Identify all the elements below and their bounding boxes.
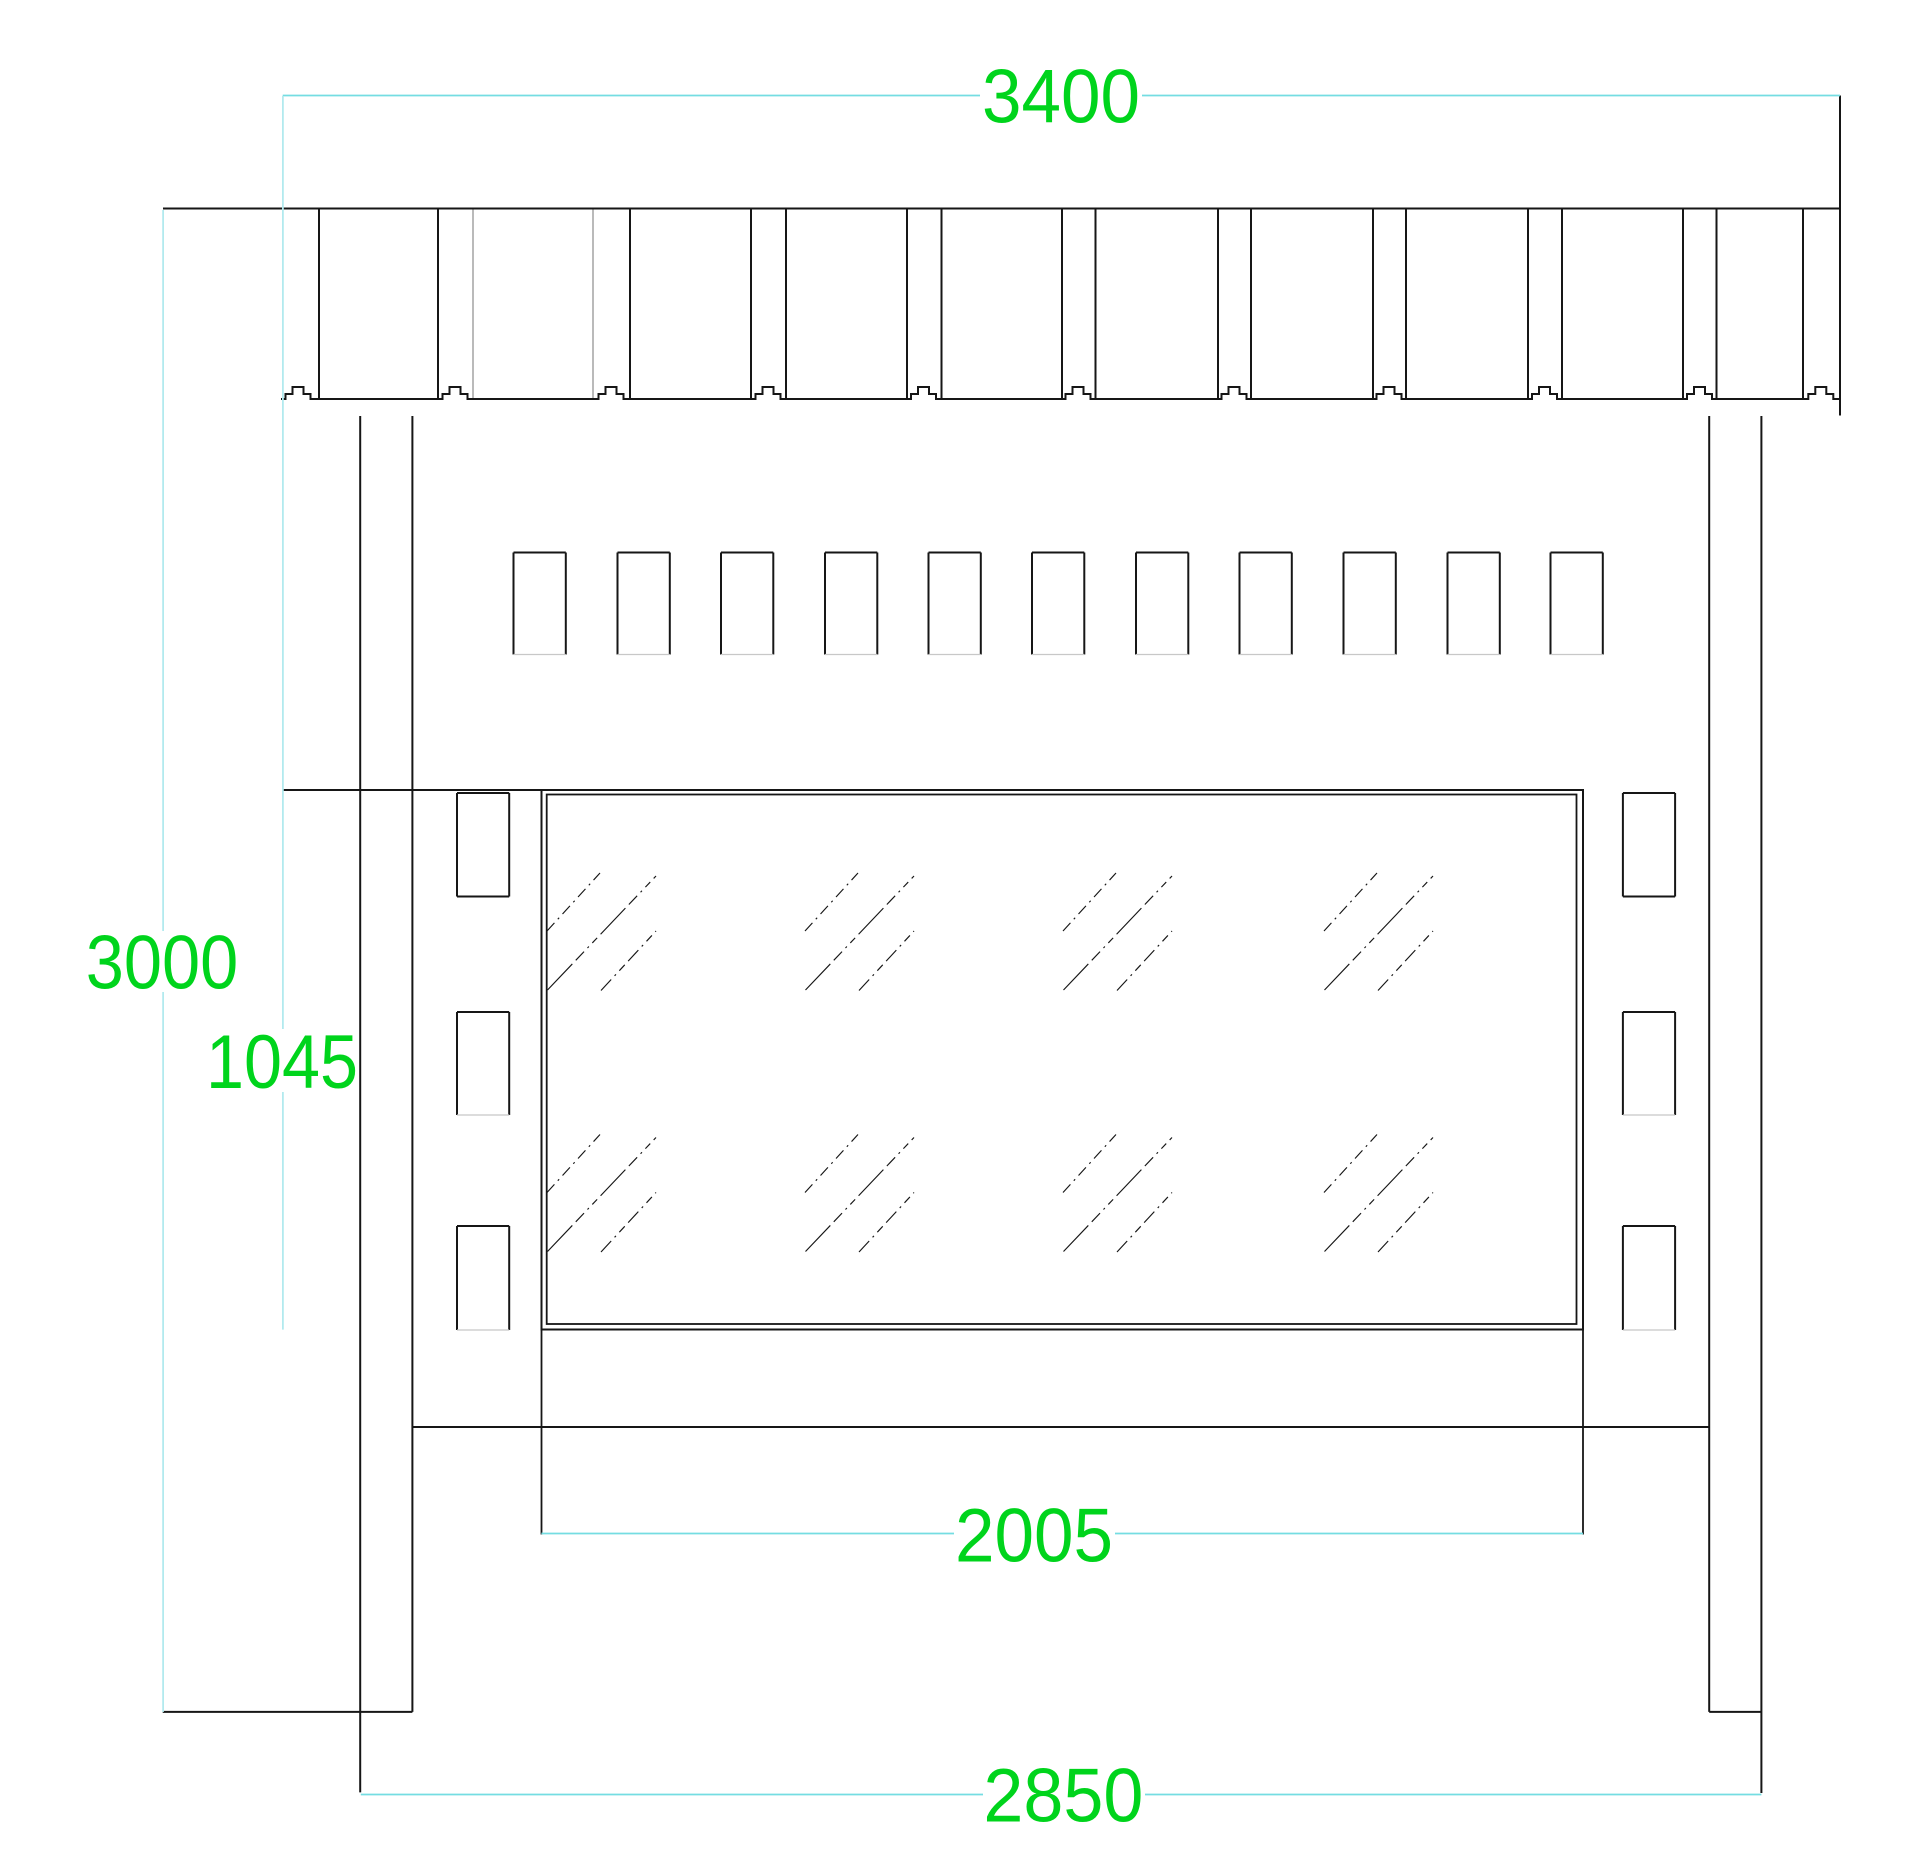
- svg-text:1045: 1045: [206, 1020, 358, 1105]
- svg-text:3400: 3400: [982, 55, 1140, 140]
- svg-text:2005: 2005: [955, 1494, 1113, 1579]
- svg-text:2850: 2850: [983, 1754, 1143, 1839]
- svg-text:3000: 3000: [86, 921, 239, 1006]
